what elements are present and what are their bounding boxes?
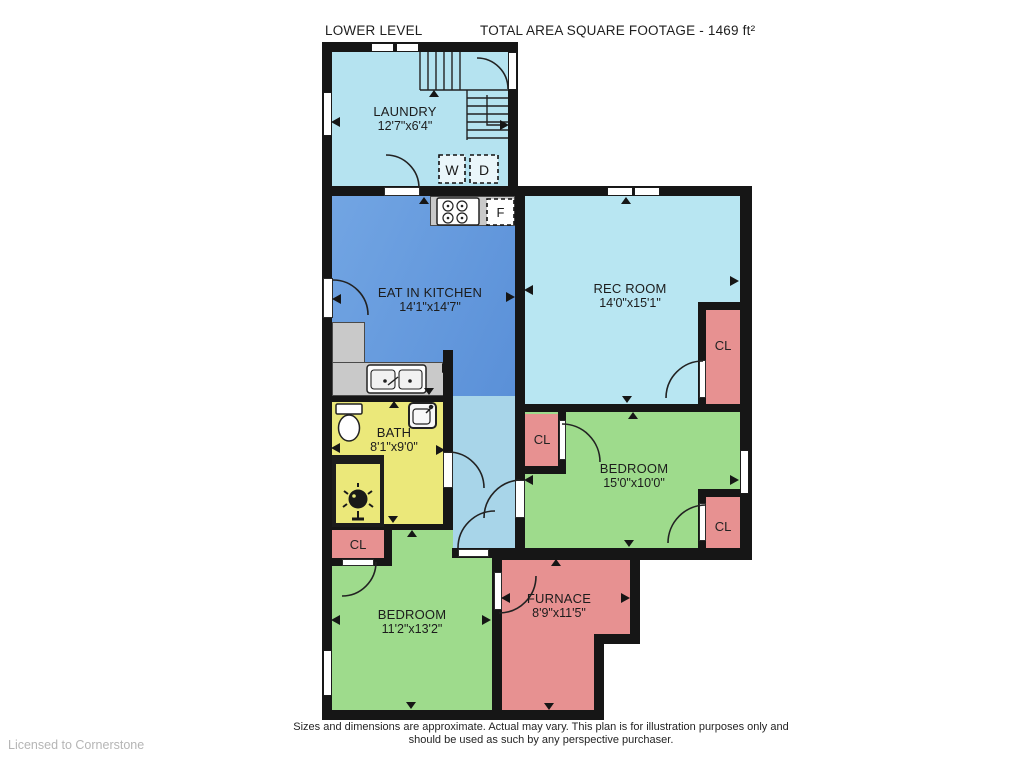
disclaimer: Sizes and dimensions are approximate. Ac… bbox=[29, 721, 1024, 746]
door-gap-closet-br-top bbox=[559, 420, 566, 460]
kitchen-hall-stub-wall bbox=[443, 350, 453, 396]
kitchen-counter-left bbox=[332, 322, 365, 364]
window-bedroom-left bbox=[323, 650, 332, 696]
label-closet-bl: CL bbox=[332, 537, 384, 552]
label-dryer: D bbox=[470, 162, 498, 178]
door-gap-bedroom-right bbox=[515, 480, 525, 518]
plan-level-title: LOWER LEVEL bbox=[325, 23, 423, 38]
window-rec-top-2 bbox=[634, 187, 660, 196]
label-furnace: FURNACE 8'9"x11'5" bbox=[500, 591, 618, 621]
room-bath bbox=[332, 402, 443, 524]
label-fridge: F bbox=[487, 205, 514, 220]
license-text: Licensed to Cornerstone bbox=[8, 738, 144, 752]
window-laundry-right bbox=[508, 52, 517, 90]
closet-rec-wall-top bbox=[698, 302, 740, 310]
door-gap-bedroom-left bbox=[458, 549, 489, 557]
window-rec-top-1 bbox=[607, 187, 633, 196]
window-laundry-left bbox=[323, 92, 332, 136]
label-bedroom-right: BEDROOM 15'0"x10'0" bbox=[570, 461, 698, 491]
door-gap-bath bbox=[443, 452, 453, 488]
window-laundry-top-1 bbox=[371, 43, 394, 52]
closet-rec bbox=[706, 310, 740, 404]
label-bedroom-left: BEDROOM 11'2"x13'2" bbox=[347, 607, 477, 637]
label-bath: BATH 8'1"x9'0" bbox=[340, 425, 448, 455]
kitchen-counter-bottom bbox=[332, 362, 445, 396]
window-bedroom-right bbox=[740, 450, 749, 494]
room-furnace-b bbox=[502, 560, 594, 710]
disclaimer-line-1: Sizes and dimensions are approximate. Ac… bbox=[29, 721, 1024, 734]
closet-br-top-wall-b bbox=[525, 466, 566, 474]
label-closet-br-top: CL bbox=[526, 432, 558, 447]
door-gap-laundry bbox=[384, 187, 420, 196]
label-rec-room: REC ROOM 14'0"x15'1" bbox=[565, 281, 695, 311]
closet-br-bottom-wall-t bbox=[698, 489, 740, 497]
window-laundry-top-2 bbox=[396, 43, 419, 52]
disclaimer-line-2: should be used as such by any perspectiv… bbox=[29, 734, 1024, 747]
label-kitchen: EAT IN KITCHEN 14'1"x14'7" bbox=[360, 285, 500, 315]
label-washer: W bbox=[439, 162, 465, 178]
door-gap-closet-rec bbox=[699, 360, 706, 398]
total-area-label: TOTAL AREA SQUARE FOOTAGE - 1469 ft² bbox=[480, 23, 755, 38]
label-closet-br-bottom: CL bbox=[706, 519, 740, 534]
door-gap-closet-bl bbox=[342, 559, 374, 566]
label-laundry: LAUNDRY 12'7"x6'4" bbox=[340, 104, 470, 134]
floor-plan-page: { "header": { "plan_label": "LOWER LEVEL… bbox=[0, 0, 1024, 758]
label-closet-rec: CL bbox=[706, 338, 740, 353]
door-gap-closet-br-bottom bbox=[699, 503, 706, 541]
door-gap-kitchen bbox=[323, 278, 333, 318]
closet-bl-wall-r bbox=[384, 524, 392, 558]
room-hallway bbox=[453, 396, 515, 548]
